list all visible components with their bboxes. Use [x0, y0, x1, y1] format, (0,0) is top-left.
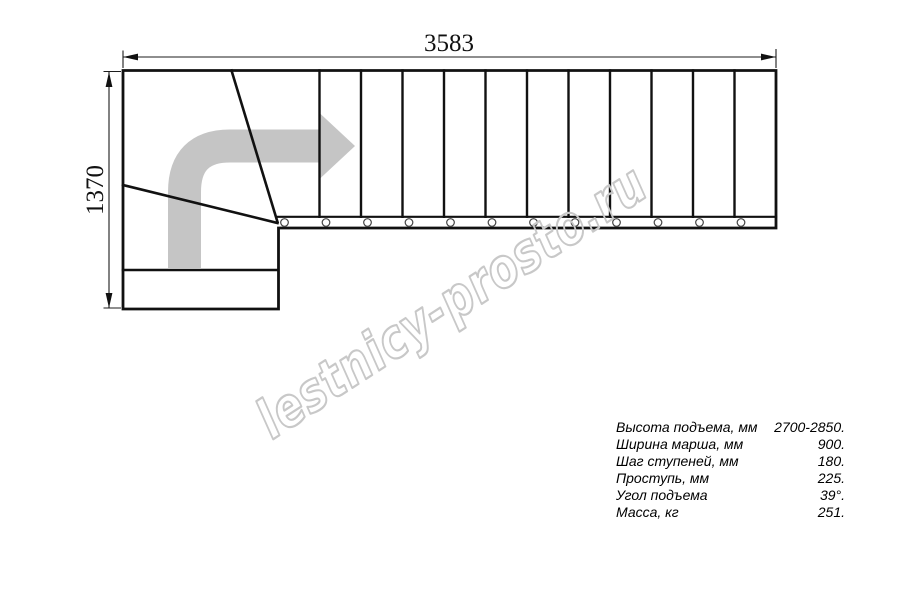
dimension-arrowhead-left [123, 54, 138, 61]
spec-label: Ширина марша, мм [616, 436, 743, 453]
spec-label: Масса, кг [616, 504, 679, 521]
bolt-circle [281, 219, 289, 227]
staircase-drawing-page: 3583 1370 lestnicy-prosto.ru Высота подъ… [0, 0, 900, 600]
spec-row-step-pitch: Шаг ступеней, мм 180. [616, 453, 845, 470]
dimension-label-total-length: 3583 [424, 30, 474, 57]
spec-label: Шаг ступеней, мм [616, 453, 739, 470]
bolt-circle [405, 219, 413, 227]
spec-value: 251. [818, 504, 845, 521]
watermark-text: lestnicy-prosto.ru [245, 152, 658, 451]
dimension-arrowhead-bottom [106, 293, 113, 308]
direction-arrow-shaft [185, 146, 320, 268]
spec-label: Угол подъема [616, 487, 708, 504]
spec-label: Высота подъема, мм [616, 419, 758, 436]
direction-arrow-head [319, 113, 355, 180]
dimension-arrowhead-top [106, 72, 113, 87]
spec-label: Проступь, мм [616, 470, 709, 487]
spec-value: 225. [818, 470, 845, 487]
bolt-circle [447, 219, 455, 227]
spec-value: 2700-2850. [774, 419, 845, 436]
spec-row-tread-depth: Проступь, мм 225. [616, 470, 845, 487]
spec-row-mass: Масса, кг 251. [616, 504, 845, 521]
spec-row-flight-width: Ширина марша, мм 900. [616, 436, 845, 453]
dimension-arrowhead-right [761, 54, 776, 61]
spec-row-rise-height: Высота подъема, мм 2700-2850. [616, 419, 845, 436]
spec-value: 180. [818, 453, 845, 470]
spec-table: Высота подъема, мм 2700-2850. Ширина мар… [616, 419, 845, 520]
spec-value: 39°. [820, 487, 845, 504]
bolt-circle [322, 219, 330, 227]
bolt-circle [364, 219, 372, 227]
bolt-circle [696, 219, 704, 227]
direction-arrow [185, 113, 356, 269]
bolt-circle [654, 219, 662, 227]
bolt-circle [737, 219, 745, 227]
bolt-circle [488, 219, 496, 227]
spec-value: 900. [818, 436, 845, 453]
dimension-label-total-width: 1370 [82, 165, 109, 215]
spec-row-rise-angle: Угол подъема 39°. [616, 487, 845, 504]
